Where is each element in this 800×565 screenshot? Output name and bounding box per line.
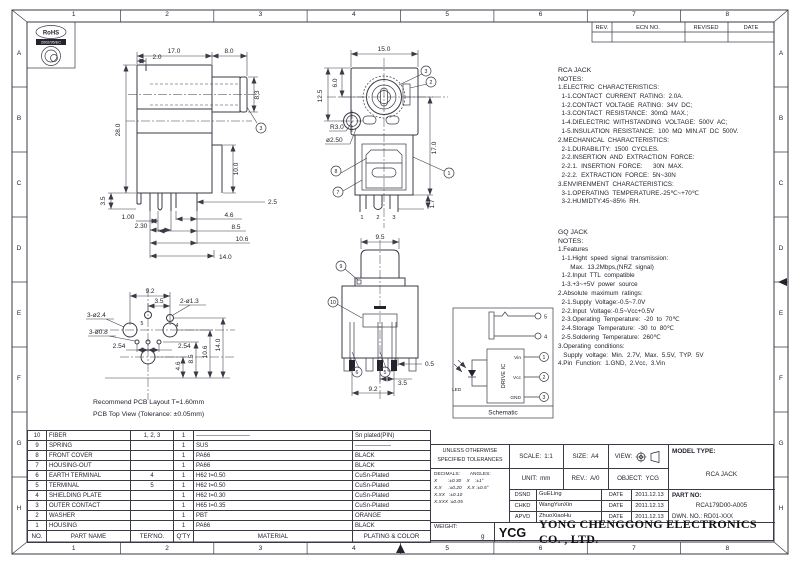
notes-title: GQ JACK — [558, 228, 774, 237]
dim-label: 17.0 — [168, 48, 181, 55]
dim-label: 10.6 — [202, 345, 209, 358]
dim-label: 3.5 — [154, 298, 163, 305]
grid-row-label: F — [776, 375, 786, 382]
bom-cell-part: SPRING — [47, 441, 131, 451]
bom-cell-plating: BLACK — [353, 521, 431, 531]
model-type-value: RCA JACK — [668, 471, 775, 478]
ic-pin-label: GND — [510, 395, 521, 401]
grid-row-label: C — [14, 180, 24, 187]
hole-label: 5 — [141, 321, 144, 327]
note-line: 1-4.DIELECTRIC WITHSTANDING VOLTAGE: 500… — [558, 119, 774, 128]
bom-cell-material: H62 t=0.50 — [194, 481, 353, 491]
title-block: UNLESS OTHERWISE SPECIFIED TOLERANCES DE… — [430, 444, 774, 541]
balloon-label: 3 — [260, 126, 263, 132]
note-line: 1-5.INSULATION RESISTANCE: 100 MΩ MIN.AT… — [558, 128, 774, 137]
dsnd-date: 2011.12.13 — [631, 489, 668, 500]
schematic: 5 4 DRIVE IC Vin Vcc GND 1 2 3 LED Schem… — [452, 308, 553, 418]
note-line: 1-1.CONTACT CURRENT RATING: 2.0A. — [558, 93, 774, 102]
bom-cell-ter — [131, 511, 174, 521]
dim-label: 8.3 — [254, 90, 261, 99]
bom-cell-part: HOUSING-OUT — [47, 461, 131, 471]
grid-column-label: 5 — [442, 11, 452, 18]
scale-label: SCALE: — [519, 453, 541, 460]
note-line: 1-3.CONTACT RESISTANCE: 30mΩ MAX.; — [558, 110, 774, 119]
grid-column-label: 1 — [69, 11, 79, 18]
bom-cell-ter: 4 — [131, 471, 174, 481]
revision-header: DATE — [744, 25, 759, 31]
bom-cell-qty: 1 — [174, 521, 194, 531]
notes-label: NOTES: — [558, 75, 774, 84]
bom-cell-qty: 1 — [174, 461, 194, 471]
revision-header: REV. — [596, 25, 609, 31]
bom-cell-plating: CuSn-Plated — [353, 471, 431, 481]
balloon-label: 7 — [337, 190, 340, 196]
bom-header-plating: PLATING & COLOR — [353, 531, 431, 543]
ic-pin-label: Vin — [514, 355, 521, 361]
bom-cell-qty: 1 — [174, 441, 194, 451]
side-view: 17.0 8.0 2.0 28.0 8.3 10.0 2.5 3.5 1.00 … — [100, 48, 277, 261]
dim-label: 2.30 — [135, 223, 148, 230]
grid-row-label: D — [14, 245, 24, 252]
bom-cell-plating: CuSn-Plated — [353, 501, 431, 511]
bom-cell-part: FIBER — [47, 431, 131, 441]
center-mark-right — [778, 278, 787, 286]
note-line: Supply voltage: Min. 2.7V, Max. 5.5V, TY… — [558, 352, 774, 361]
note-line: 2-5.Soldering Temperature: 260℃ — [558, 334, 774, 343]
unit-value: mm — [540, 475, 550, 482]
bom-cell-material: PA66 — [194, 461, 353, 471]
note-line: 2-2.Input Voltage:-0.5~Vcc+0.5V — [558, 308, 774, 317]
bom-cell-plating: ORANGE — [353, 511, 431, 521]
tolerance-line: X.XXX :±0.05 — [434, 499, 508, 506]
company-cell: YCG YONG CHENGGONG ELECTRONICS CO. , LTD… — [494, 522, 775, 542]
front-view: 15.0 12.5 6.0 17.0 1.7 R3.0 ø2.50 1 2 3 … — [317, 46, 454, 228]
chkd-date-label: DATE — [601, 500, 631, 511]
pin-number-balloon: 2 — [543, 375, 546, 381]
projection-symbol-icon — [635, 451, 661, 463]
dim-label: 2-ø1.3 — [180, 298, 199, 305]
grid-row-label: C — [776, 180, 786, 187]
dim-label: 2.0 — [152, 54, 161, 61]
grid-row-label: B — [14, 115, 24, 122]
grid-column-label: 2 — [162, 545, 172, 552]
bom-header-row: NO. PART NAME TER'NO. Q'TY MATERIAL PLAT… — [28, 531, 431, 543]
bom-cell-plating: —————— — [353, 441, 431, 451]
dim-label: 9.5 — [375, 234, 384, 241]
note-line: 1-1.Hight speed signal transmission: — [558, 255, 774, 264]
grid-column-label: 6 — [536, 11, 546, 18]
bom-cell-material: H65 t=0.35 — [194, 501, 353, 511]
tolerance-line: X :±0.30 X :±1° — [434, 478, 508, 485]
rohs-title: RoHS — [43, 31, 59, 37]
note-line: 1.ELECTRIC CHARACTERISTICS: — [558, 84, 774, 93]
balloon-label: 6 — [356, 370, 359, 376]
bom-cell-ter — [131, 501, 174, 511]
dim-label: 15.0 — [378, 46, 391, 53]
view-label: VIEW: — [615, 453, 632, 460]
balloon-label: 9 — [340, 264, 343, 270]
company-logo: YCG — [494, 524, 531, 541]
dim-label: 8.5 — [231, 224, 240, 231]
dsnd-date-label: DATE — [601, 489, 631, 500]
grid-row-label: B — [776, 115, 786, 122]
grid-column-label: 4 — [349, 545, 359, 552]
schematic-caption: Schematic — [488, 410, 517, 417]
object-cell: OBJECT: YCG — [608, 468, 668, 489]
bom-cell-part: HOUSING — [47, 521, 131, 531]
note-line: 1-2.Input TTL compatible — [558, 272, 774, 281]
bom-cell-qty: 1 — [174, 511, 194, 521]
rear-view: 9.5 0.5 3.5 9.2 9 10 6 5 — [328, 234, 434, 400]
balloon-label: 3 — [425, 69, 428, 75]
size-cell: SIZE: A4 — [563, 445, 608, 468]
bom-cell-part: EARTH TERMINAL — [47, 471, 131, 481]
note-line: 3.ENVIRENMENT CHARACTERISTICS: — [558, 181, 774, 190]
note-line: 1-2.CONTACT VOLTAGE RATING: 34V DC; — [558, 102, 774, 111]
decimals-label: DECIMALS: — [434, 471, 460, 478]
dim-label: 4.6 — [224, 212, 233, 219]
apvd-label: APVD — [509, 511, 536, 522]
bom-row: 8FRONT COVER1PA66BLACK — [28, 451, 431, 461]
dim-label: 2.54 — [178, 343, 191, 350]
bom-table: 10FIBER1, 2, 31—————————Sn plated(PIN)9S… — [27, 430, 431, 543]
grid-row-label: E — [14, 310, 24, 317]
bom-cell-plating: BLACK — [353, 461, 431, 471]
grid-row-label: H — [14, 505, 24, 512]
bom-row: 5TERMINAL51H62 t=0.50CuSn-Plated — [28, 481, 431, 491]
ic-pin-label: Vcc — [513, 375, 522, 381]
bom-header-part: PART NAME — [47, 531, 131, 543]
dim-label: 2.54 — [113, 343, 126, 350]
bom-cell-qty: 1 — [174, 431, 194, 441]
weight-unit: g — [481, 533, 485, 540]
bom-cell-ter — [131, 461, 174, 471]
note-line: 1-3.+3~+5V power source — [558, 281, 774, 290]
rev-value: A/0 — [590, 475, 599, 482]
bom-row: 2WASHER1PBTORANGE — [28, 511, 431, 521]
dim-label: 28.0 — [115, 123, 122, 136]
rca-jack-notes: RCA JACK NOTES: 1.ELECTRIC CHARACTERISTI… — [558, 66, 774, 207]
note-line: 4.Pin Function: 1.GND, 2.Vcc, 3.Vin — [558, 360, 774, 369]
pin-number-balloon: 1 — [543, 355, 546, 361]
pin-number-balloon: 3 — [543, 395, 546, 401]
dim-label: 4.6 — [175, 361, 182, 370]
led-diode-symbol — [468, 370, 476, 377]
note-line: 2-2.INSERTION AND EXTRACTION FORCE: — [558, 154, 774, 163]
bom-cell-no: 3 — [28, 501, 47, 511]
chkd-label: CHKD — [509, 500, 536, 511]
note-line: 2.Absolute maximum ratings: — [558, 290, 774, 299]
led-label: LED — [452, 387, 462, 393]
unit-label: UNIT: — [522, 475, 537, 482]
grid-row-label: H — [776, 505, 786, 512]
bom-cell-ter — [131, 441, 174, 451]
pin-label: 2 — [376, 215, 379, 221]
grid-column-label: 3 — [255, 11, 265, 18]
rohs-subtitle: 2002/95/EC — [41, 41, 61, 45]
bom-cell-no: 2 — [28, 511, 47, 521]
bom-cell-material: PBT — [194, 511, 353, 521]
dim-label: 3.5 — [398, 380, 407, 387]
note-line: 2-4.Storage Temperature: -30 to 80℃ — [558, 325, 774, 334]
dim-label: 14.0 — [219, 254, 232, 261]
note-line: 2-2.2. EXTRACTION FORCE: 5N~30N — [558, 172, 774, 181]
pcb-caption: PCB Top View (Tolerance: ±0.05mm) — [93, 411, 204, 418]
grid-row-label: D — [776, 245, 786, 252]
dim-label: 8.5 — [188, 354, 195, 363]
grid-column-label: 2 — [162, 11, 172, 18]
pcb-caption: Recommend PCB Layout T=1.60mm — [93, 399, 204, 406]
bom-cell-ter: 5 — [131, 481, 174, 491]
part-no-label: PART NO: — [672, 492, 701, 499]
grid-column-label: 4 — [349, 11, 359, 18]
object-value: YCG — [646, 475, 659, 482]
bom-cell-no: 5 — [28, 481, 47, 491]
dim-label: 6.0 — [332, 78, 339, 87]
note-line: 2-1.DURABILITY: 1500 CYCLES. — [558, 146, 774, 155]
grid-row-label: F — [14, 375, 24, 382]
model-type-label: MODEL TYPE: — [672, 448, 716, 455]
dim-label: 10.0 — [233, 162, 240, 175]
bom-header-qty: Q'TY — [174, 531, 194, 543]
dim-label: 8.0 — [224, 48, 233, 55]
bom-cell-qty: 1 — [174, 481, 194, 491]
tolerance-title-line1: UNLESS OTHERWISE — [431, 447, 509, 456]
grid-row-label: A — [14, 50, 24, 57]
bom-cell-material: H62 t=0.50 — [194, 471, 353, 481]
grid-row-label: G — [14, 440, 24, 447]
bom-cell-part: FRONT COVER — [47, 451, 131, 461]
bom-cell-ter — [131, 521, 174, 531]
size-value: A4 — [591, 453, 599, 460]
terminal-label: 4 — [544, 335, 547, 341]
dsnd-label: DSND — [509, 489, 536, 500]
angles-label: ANGLES: — [470, 471, 491, 478]
bom-cell-ter — [131, 451, 174, 461]
grid-row-label: A — [776, 50, 786, 57]
dim-label: 10.6 — [236, 236, 249, 243]
grid-row-label: E — [776, 310, 786, 317]
bom-header-ter: TER'NO. — [131, 531, 174, 543]
note-line: 2-3.Operating Temperature: -20 to 70℃ — [558, 316, 774, 325]
bom-cell-part: TERMINAL — [47, 481, 131, 491]
bom-row: 10FIBER1, 2, 31—————————Sn plated(PIN) — [28, 431, 431, 441]
scale-value: 1:1 — [544, 453, 553, 460]
bom-cell-no: 1 — [28, 521, 47, 531]
grid-column-label: 7 — [629, 11, 639, 18]
note-line: 2-2.1. INSERTION FORCE: 30N MAX. — [558, 163, 774, 172]
note-line: 3-2.HUMIDTY:45~85% RH. — [558, 198, 774, 207]
grid-row-label: G — [776, 440, 786, 447]
bom-cell-material: PA66 — [194, 521, 353, 531]
notes-title: RCA JACK — [558, 66, 774, 75]
chkd-name: WangYunXin — [539, 502, 601, 508]
balloon-label: 8 — [335, 169, 338, 175]
chkd-date: 2011.12.13 — [631, 500, 668, 511]
dsnd-name: GuELing — [539, 491, 601, 497]
dim-label: 1.7 — [429, 199, 436, 208]
dim-label: R3.0 — [330, 124, 344, 131]
dim-label: 9.2 — [145, 288, 154, 295]
weight-label: WEIGHT: — [434, 524, 457, 530]
bom-cell-no: 8 — [28, 451, 47, 461]
bom-cell-plating: CuSn-Plated — [353, 481, 431, 491]
balloon-label: 1 — [448, 171, 451, 177]
dim-label: 12.5 — [317, 89, 324, 102]
bom-cell-ter — [131, 491, 174, 501]
pin-label: 1 — [360, 215, 363, 221]
dim-label: 2.5 — [268, 199, 277, 206]
dim-label: 3.5 — [100, 196, 107, 205]
view-cell: VIEW: — [608, 445, 668, 468]
dim-label: 3-ø2.4 — [87, 312, 106, 319]
bom-row: 7HOUSING-OUT1PA66BLACK — [28, 461, 431, 471]
bom-header-material: MATERIAL — [194, 531, 353, 543]
bom-cell-qty: 1 — [174, 451, 194, 461]
rohs-logo: RoHS 2002/95/EC — [27, 22, 75, 68]
note-line: 3.Operating conditions: — [558, 343, 774, 352]
bom-cell-no: 10 — [28, 431, 47, 441]
drawing-sheet: RoHS 2002/95/EC REV. ECN NO. REVISED DAT… — [0, 0, 800, 565]
notes-label: NOTES: — [558, 237, 774, 246]
bom-cell-ter: 1, 2, 3 — [131, 431, 174, 441]
bom-row: 6EARTH TERMINAL41H62 t=0.50CuSn-Plated — [28, 471, 431, 481]
bom-cell-part: OUTER CONTACT — [47, 501, 131, 511]
dim-label: 14.0 — [215, 338, 222, 351]
bom-cell-part: SHIELDING PLATE — [47, 491, 131, 501]
ic-label: DRIVE IC — [501, 364, 507, 389]
terminal-label: 5 — [544, 315, 547, 321]
dim-label: ø2.50 — [326, 137, 343, 144]
bom-cell-no: 4 — [28, 491, 47, 501]
rev-label: REV.: — [572, 475, 588, 482]
bom-cell-no: 7 — [28, 461, 47, 471]
dim-label: 3-ø0.8 — [89, 329, 108, 336]
bom-cell-material: H62 t=0.30 — [194, 491, 353, 501]
hole-label: 4 — [176, 323, 179, 329]
object-label: OBJECT: — [617, 475, 642, 482]
bom-cell-qty: 1 — [174, 471, 194, 481]
part-no-value: RCA179D00-A005 — [668, 502, 775, 509]
bom-cell-plating: Sn plated(PIN) — [353, 431, 431, 441]
tolerance-line: X.XX :±0.10 — [434, 492, 508, 499]
gq-jack-notes: GQ JACK NOTES: 1.Features 1-1.Hight spee… — [558, 228, 774, 369]
dim-label: 9.2 — [368, 386, 377, 393]
rev-cell: REV.: A/0 — [563, 468, 608, 489]
tolerance-title-line2: SPECIFIED TOLERANCES — [431, 456, 509, 465]
revision-header: REVISED — [694, 25, 719, 31]
bom-cell-plating: BLACK — [353, 451, 431, 461]
balloon-label: 2 — [430, 80, 433, 86]
bom-cell-no: 6 — [28, 471, 47, 481]
bom-row: 1HOUSING1PA66BLACK — [28, 521, 431, 531]
balloon-label: 10 — [330, 300, 336, 306]
bom-cell-material: PA66 — [194, 451, 353, 461]
pcb-layout-view: 5 4 9.2 3.5 2-ø1.3 3-ø2.4 3-ø0.8 2.54 2.… — [86, 288, 235, 418]
revision-table: REV. ECN NO. REVISED DATE — [592, 22, 774, 42]
note-line: 2-1.Supply Voltage:-0.5~7.0V — [558, 299, 774, 308]
unit-cell: UNIT: mm — [509, 468, 563, 489]
dim-label: 0.5 — [425, 361, 434, 368]
grid-column-label: 5 — [442, 545, 452, 552]
company-name: YONG CHENGGONG ELECTRONICS CO. , LTD. — [539, 517, 775, 547]
grid-column-label: 1 — [69, 545, 79, 552]
dim-label: 1.00 — [122, 214, 135, 221]
dim-label: 17.0 — [431, 141, 438, 154]
bom-cell-plating: CuSn-Plated — [353, 491, 431, 501]
note-line: Max. 13.2Mbps,(NRZ signal) — [558, 264, 774, 273]
bom-cell-qty: 1 — [174, 491, 194, 501]
bom-row: 9SPRING1SUS—————— — [28, 441, 431, 451]
bom-cell-part: WASHER — [47, 511, 131, 521]
pin-label: 3 — [392, 215, 395, 221]
note-line: 3-1.OPERATING TEMPERATURE.-25℃~+70℃ — [558, 190, 774, 199]
note-line: 2.MECHANICAL CHARACTERISTICS: — [558, 137, 774, 146]
bom-cell-material: ————————— — [194, 431, 353, 441]
scale-cell: SCALE: 1:1 — [509, 445, 563, 468]
tolerance-note: UNLESS OTHERWISE SPECIFIED TOLERANCES — [431, 447, 509, 465]
bom-header-no: NO. — [28, 531, 47, 543]
bom-row: 4SHIELDING PLATE1H62 t=0.30CuSn-Plated — [28, 491, 431, 501]
revision-header: ECN NO. — [636, 25, 660, 31]
center-mark-bottom — [396, 544, 405, 553]
bom-cell-qty: 1 — [174, 501, 194, 511]
balloon-label: 5 — [384, 370, 387, 376]
tolerance-line: X.X :±0.20 X.X :±0.5° — [434, 485, 508, 492]
bom-cell-no: 9 — [28, 441, 47, 451]
tolerance-table: DECIMALS: ANGLES: X :±0.30 X :±1° X.X :±… — [434, 471, 508, 506]
size-label: SIZE: — [572, 453, 587, 460]
grid-column-label: 8 — [722, 11, 732, 18]
svg-text:YCG: YCG — [499, 526, 527, 540]
grid-column-label: 3 — [255, 545, 265, 552]
bom-cell-material: SUS — [194, 441, 353, 451]
bom-row: 3OUTER CONTACT1H65 t=0.35CuSn-Plated — [28, 501, 431, 511]
note-line: 1.Features — [558, 246, 774, 255]
